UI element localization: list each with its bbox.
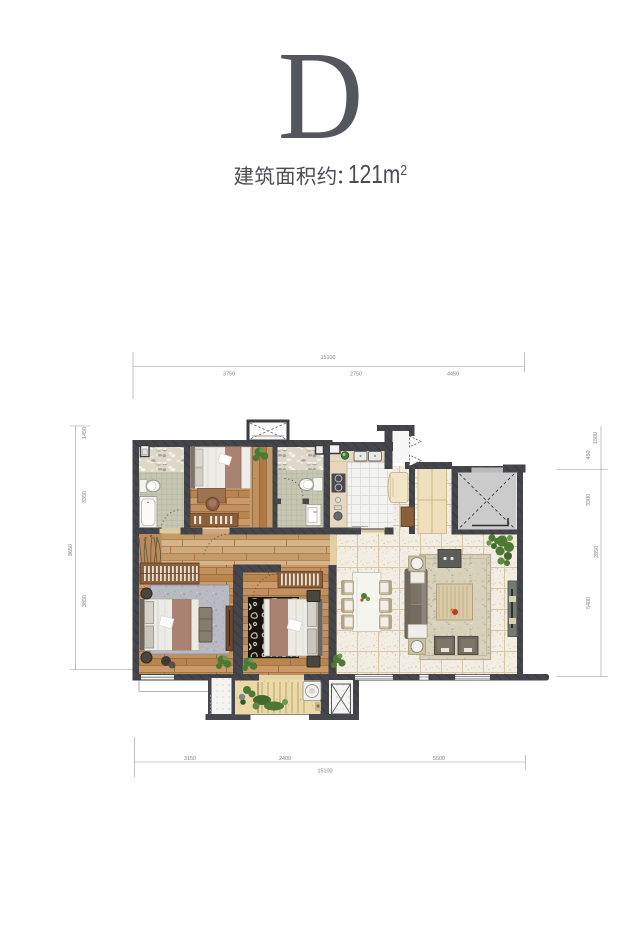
- svg-text:1500: 1500: [593, 432, 599, 444]
- svg-text:3300: 3300: [586, 494, 592, 506]
- svg-text:2750: 2750: [350, 372, 362, 378]
- svg-text:121m2: 121m2: [348, 160, 407, 188]
- svg-text:3750: 3750: [223, 372, 235, 378]
- svg-text:1450: 1450: [82, 427, 88, 439]
- svg-text:3150: 3150: [184, 756, 196, 762]
- svg-text:3850: 3850: [82, 595, 88, 607]
- svg-text:2850: 2850: [594, 546, 600, 558]
- svg-text:5500: 5500: [433, 756, 445, 762]
- svg-text:15100: 15100: [321, 355, 336, 361]
- svg-text:8650: 8650: [68, 544, 74, 556]
- svg-text:2400: 2400: [279, 756, 291, 762]
- svg-text:450: 450: [586, 451, 592, 460]
- svg-text:15100: 15100: [318, 769, 333, 775]
- svg-text:3350: 3350: [82, 491, 88, 503]
- svg-text:4450: 4450: [447, 372, 459, 378]
- svg-text:D: D: [278, 27, 364, 166]
- svg-text:5400: 5400: [586, 597, 592, 609]
